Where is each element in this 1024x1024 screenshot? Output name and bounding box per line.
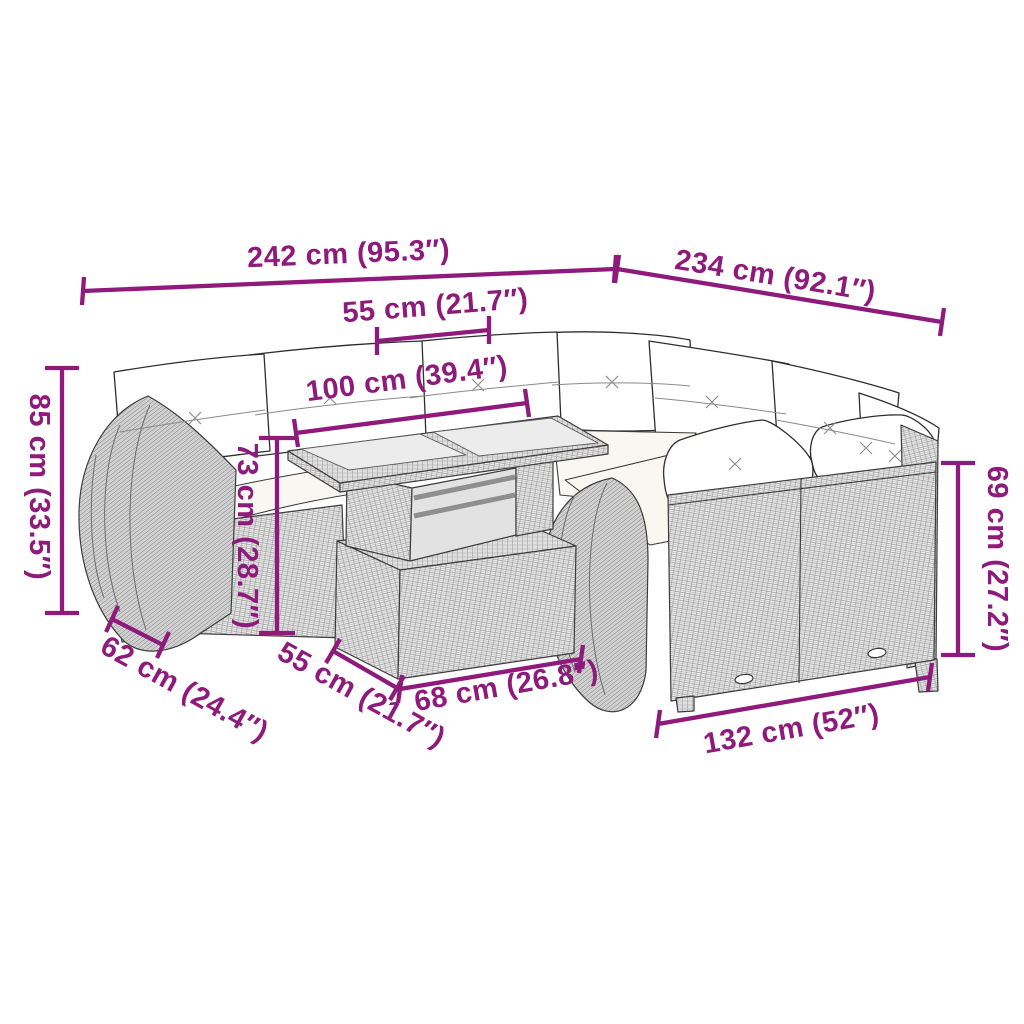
dimension-label: 55 cm (21.7″) [341,283,529,330]
dimension-label: 73 cm (28.7″) [231,443,263,629]
dimension-234cm: 234 cm (92.1″) [615,244,944,336]
dimension-label: 242 cm (95.3″) [247,234,451,274]
dimension-label: 132 cm (52″) [701,698,882,760]
dimension-85cm: 85 cm (33.5″) [23,368,79,613]
sofa-set-dimension-diagram: 242 cm (95.3″) 234 cm (92.1″) 55 cm (21.… [0,0,1024,1024]
panel-foot [676,696,694,712]
dimension-242cm: 242 cm (95.3″) [82,234,616,305]
dimension-line [941,463,975,655]
diagram-canvas: 242 cm (95.3″) 234 cm (92.1″) 55 cm (21.… [0,0,1024,1024]
sofa-set-illustration [79,332,939,712]
front-panel-right [668,462,936,701]
dimension-label: 85 cm (33.5″) [23,394,55,580]
dimension-label: 69 cm (27.2″) [981,466,1013,652]
dimension-69cm: 69 cm (27.2″) [941,463,1013,655]
dimension-label: 234 cm (92.1″) [673,244,879,308]
dimension-label: 62 cm (24.4″) [95,630,274,748]
